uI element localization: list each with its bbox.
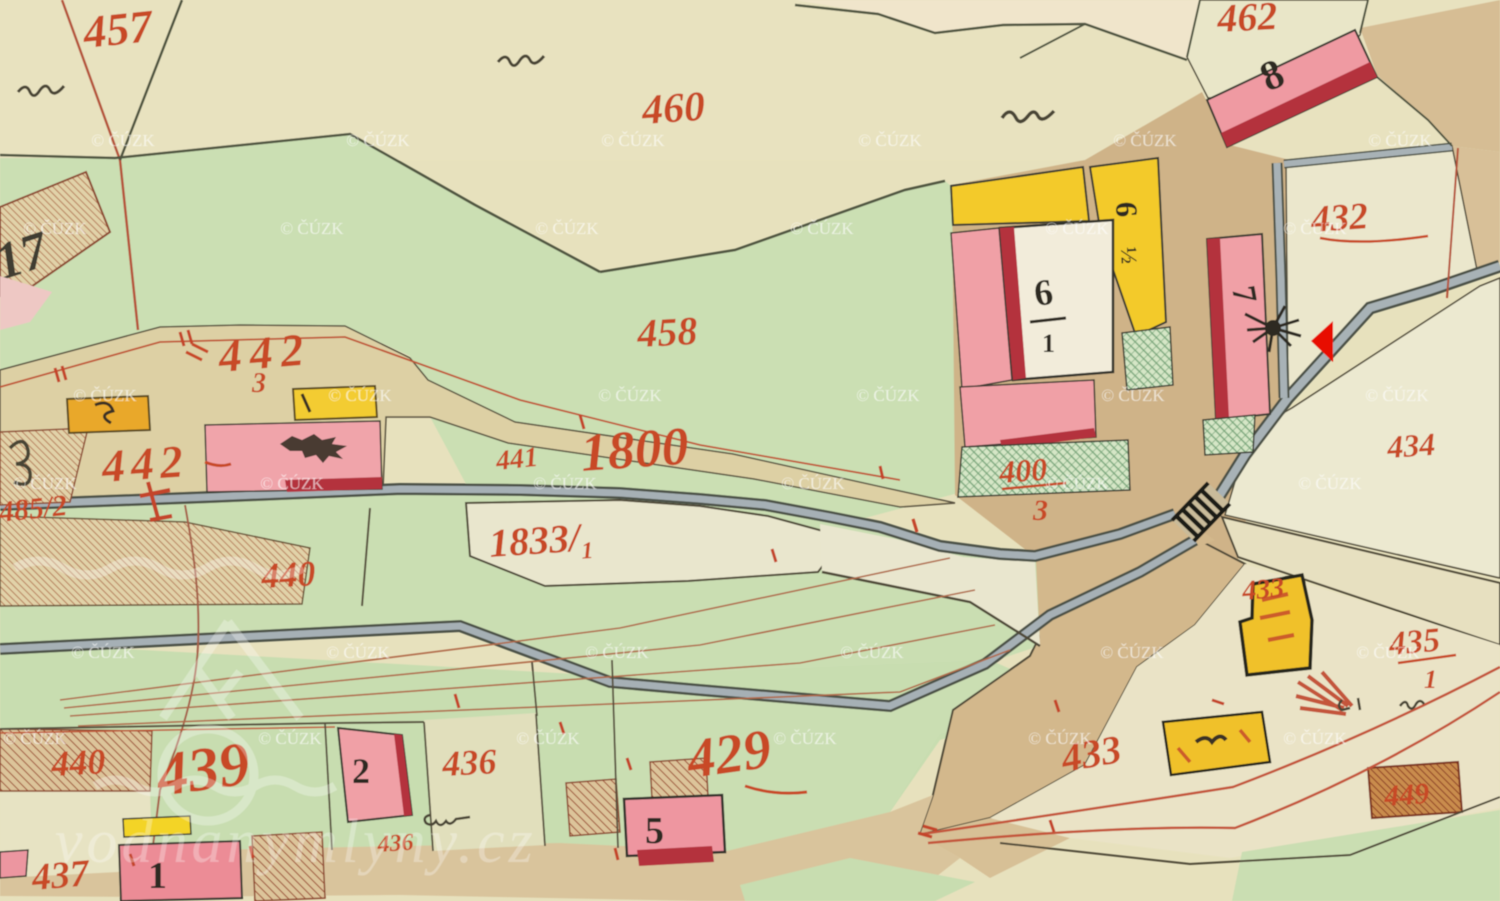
svg-text:vodnanymlyny.cz: vodnanymlyny.cz — [55, 808, 537, 876]
svg-text:449: 449 — [1382, 777, 1430, 813]
svg-text:© ČÚZK: © ČÚZK — [3, 729, 67, 748]
svg-text:© ČÚZK: © ČÚZK — [91, 131, 155, 150]
svg-text:© ČÚZK: © ČÚZK — [280, 219, 344, 238]
svg-text:© ČÚZK: © ČÚZK — [858, 131, 922, 150]
svg-text:© ČÚZK: © ČÚZK — [598, 386, 662, 405]
svg-text:© ČÚZK: © ČÚZK — [260, 474, 324, 493]
svg-text:1800: 1800 — [579, 416, 691, 483]
svg-text:© ČÚZK: © ČÚZK — [601, 131, 665, 150]
svg-text:441: 441 — [493, 442, 539, 477]
svg-text:© ČÚZK: © ČÚZK — [533, 474, 597, 493]
svg-text:© ČÚZK: © ČÚZK — [1045, 219, 1109, 238]
svg-text:© ČÚZK: © ČÚZK — [516, 729, 580, 748]
svg-text:© ČÚZK: © ČÚZK — [1283, 219, 1347, 238]
svg-text:½: ½ — [1116, 246, 1142, 264]
svg-text:3: 3 — [251, 368, 266, 399]
svg-text:462: 462 — [1215, 0, 1278, 41]
svg-text:1833/₁: 1833/₁ — [487, 514, 595, 566]
svg-text:460: 460 — [639, 84, 706, 134]
svg-text:© ČÚZK: © ČÚZK — [1113, 131, 1177, 150]
svg-text:© ČÚZK: © ČÚZK — [73, 386, 137, 405]
svg-text:3: 3 — [1032, 494, 1048, 527]
svg-text:© ČÚZK: © ČÚZK — [326, 643, 390, 662]
svg-text:© ČÚZK: © ČÚZK — [328, 386, 392, 405]
svg-text:© ČÚZK: © ČÚZK — [535, 219, 599, 238]
svg-text:© ČÚZK: © ČÚZK — [13, 474, 77, 493]
svg-text:© ČÚZK: © ČÚZK — [1368, 131, 1432, 150]
svg-text:© ČÚZK: © ČÚZK — [1101, 386, 1165, 405]
svg-text:© ČÚZK: © ČÚZK — [781, 474, 845, 493]
svg-text:© ČÚZK: © ČÚZK — [1100, 643, 1164, 662]
svg-text:433: 433 — [1240, 572, 1286, 607]
svg-text:436: 436 — [440, 741, 497, 784]
svg-text:© ČÚZK: © ČÚZK — [773, 729, 837, 748]
svg-text:© ČÚZK: © ČÚZK — [1028, 729, 1092, 748]
svg-text:5: 5 — [645, 810, 664, 852]
svg-text:429: 429 — [682, 718, 775, 791]
svg-text:458: 458 — [635, 308, 698, 356]
svg-text:© ČÚZK: © ČÚZK — [258, 729, 322, 748]
svg-text:© ČÚZK: © ČÚZK — [790, 219, 854, 238]
svg-text:© ČÚZK: © ČÚZK — [1356, 643, 1420, 662]
svg-text:434: 434 — [1385, 426, 1436, 465]
svg-text:© ČÚZK: © ČÚZK — [1045, 474, 1109, 493]
svg-text:1: 1 — [1424, 665, 1437, 694]
svg-text:© ČÚZK: © ČÚZK — [71, 643, 135, 662]
svg-text:© ČÚZK: © ČÚZK — [1298, 474, 1362, 493]
svg-text:1: 1 — [1042, 329, 1055, 358]
svg-text:© ČÚZK: © ČÚZK — [856, 386, 920, 405]
svg-text:© ČÚZK: © ČÚZK — [585, 643, 649, 662]
svg-text:6: 6 — [1109, 201, 1145, 218]
svg-text:© ČÚZK: © ČÚZK — [1365, 386, 1429, 405]
svg-text:© ČÚZK: © ČÚZK — [346, 131, 410, 150]
svg-text:2: 2 — [352, 751, 370, 791]
svg-text:442: 442 — [99, 435, 190, 492]
svg-text:457: 457 — [80, 0, 157, 58]
svg-text:© ČÚZK: © ČÚZK — [840, 643, 904, 662]
svg-text:© ČÚZK: © ČÚZK — [1283, 729, 1347, 748]
svg-text:© ČÚZK: © ČÚZK — [23, 219, 87, 238]
